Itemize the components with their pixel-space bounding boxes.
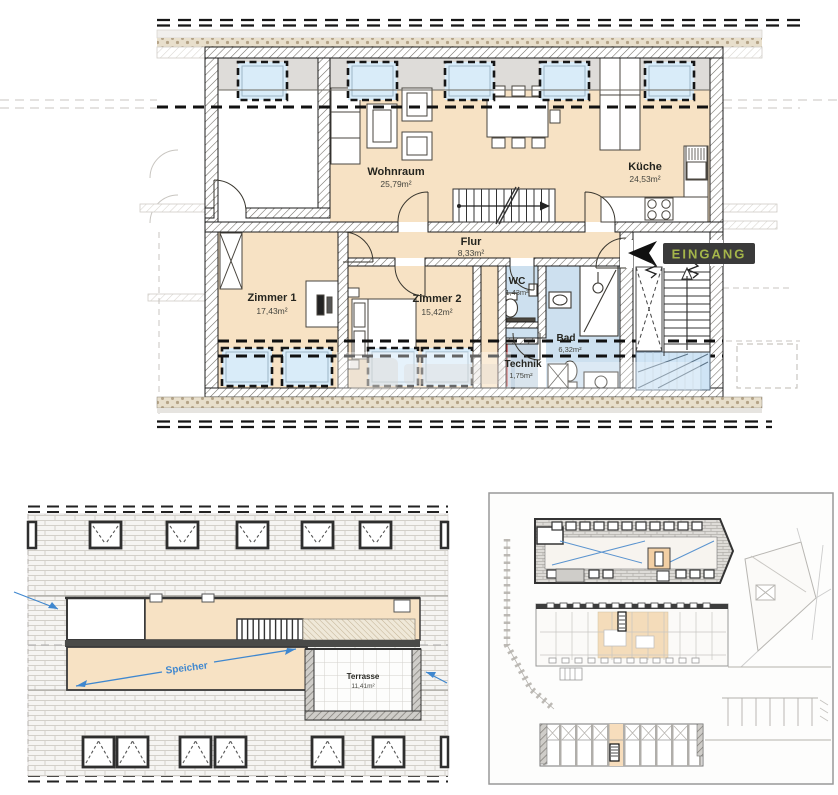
- eaves-pebble-band-bottom: [157, 397, 762, 408]
- room-label-kueche: Küche: [628, 161, 662, 173]
- dining-table: [487, 97, 548, 137]
- room-label-wc: WC: [509, 276, 526, 287]
- main-floor-plan: EINGANG Wohnraum 25,79m² Küche 24,53m² F…: [157, 20, 800, 427]
- room-label-wohnraum: Wohnraum: [367, 166, 424, 178]
- floorplan-page: EINGANG Wohnraum 25,79m² Küche 24,53m² F…: [0, 0, 838, 795]
- room-area-zimmer2: 15,42m²: [421, 307, 452, 317]
- room-label-flur: Flur: [461, 236, 482, 248]
- room-area-technik: 1,75m²: [509, 371, 533, 380]
- room-label-bad: Bad: [557, 333, 576, 344]
- mini-garage-plan: [540, 724, 703, 766]
- section-boundary-bottom: [157, 422, 772, 428]
- room-area-flur: 8,33m²: [458, 248, 485, 258]
- floorplan-drawing: EINGANG Wohnraum 25,79m² Küche 24,53m² F…: [0, 0, 838, 795]
- site-overview-panel: [489, 493, 833, 784]
- room-label-technik: Technik: [504, 359, 541, 370]
- room-area-wohnraum: 25,79m²: [380, 179, 411, 189]
- room-area-kueche: 24,53m²: [629, 174, 660, 184]
- room-area-zimmer1: 17,43m²: [256, 306, 287, 316]
- mini-stair-icon-garage: [610, 744, 619, 761]
- room-area-bad: 6,32m²: [558, 345, 582, 354]
- attic-roof-plan: Speicher Terrasse 11,41m²: [14, 507, 448, 782]
- terrasse-area: 11,41m²: [351, 683, 375, 690]
- monitor: [317, 295, 324, 315]
- eaves-band-top: [157, 30, 762, 38]
- mini-roof-plan: [535, 519, 733, 583]
- roof-skylights-top: [28, 522, 448, 548]
- terrasse-label: Terrasse: [347, 672, 380, 681]
- terrasse: Terrasse 11,41m²: [305, 649, 421, 720]
- eaves-pebble-band: [157, 38, 762, 47]
- room-area-wc: 1,43m²: [505, 288, 529, 297]
- attic-stair: [453, 187, 555, 224]
- section-boundary-top: [157, 20, 800, 26]
- sink: [549, 292, 571, 308]
- room-label-zimmer1: Zimmer 1: [248, 292, 297, 304]
- entrance-badge-label: EINGANG: [672, 247, 747, 262]
- room-label-zimmer2: Zimmer 2: [413, 293, 462, 305]
